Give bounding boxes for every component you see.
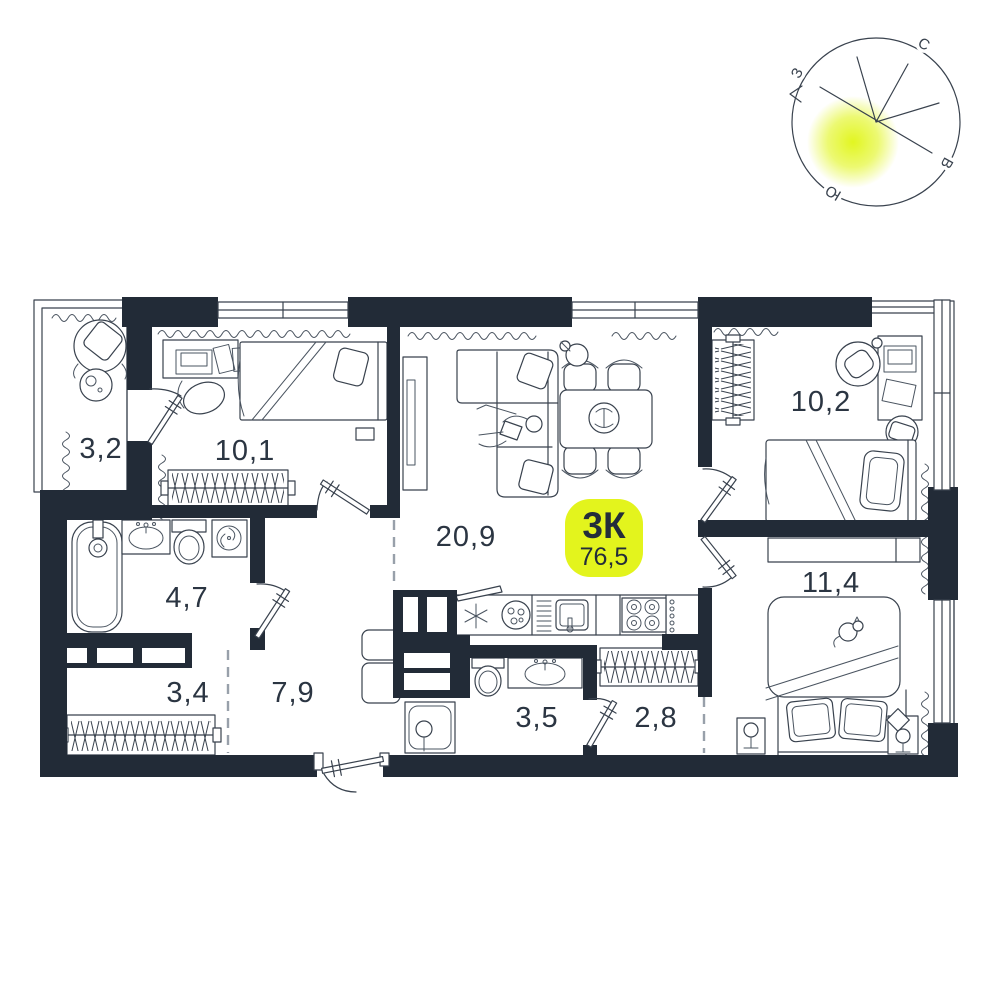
window	[934, 300, 950, 490]
shower-icon	[405, 702, 455, 753]
wall-lamp-icon	[356, 428, 374, 440]
unit-type-label: 3К	[582, 505, 626, 546]
window	[572, 302, 698, 318]
living-room-furniture	[403, 341, 652, 497]
balcony-furniture	[74, 320, 127, 401]
washing-machine-icon	[212, 520, 247, 557]
window	[934, 600, 950, 723]
pillow-icon	[786, 698, 836, 743]
stove-icon	[622, 598, 674, 632]
bed-icon	[765, 440, 916, 522]
room-area-label-bedroom-3: 11,4	[802, 567, 860, 599]
door-icon	[251, 584, 293, 641]
door-icon	[697, 469, 739, 525]
door-icon	[144, 389, 186, 447]
desk-chair-icon	[179, 377, 229, 420]
window	[218, 302, 348, 318]
nightstand-icon	[737, 718, 765, 754]
room-area-label-bedroom-1: 10,1	[215, 435, 275, 467]
unit-area-label: 76,5	[580, 543, 629, 571]
washbasin-icon	[508, 658, 582, 688]
room-area-label-shower: 3,5	[515, 702, 558, 734]
wardrobe-rail-icon	[594, 648, 702, 686]
compass-north-label: С	[915, 34, 933, 54]
entrance-door-icon	[314, 751, 389, 792]
washbasin-icon	[122, 520, 170, 554]
compass-arrow-icon	[790, 86, 802, 102]
bedroom1-furniture	[161, 340, 387, 506]
storage-wardrobe-icon	[60, 715, 221, 755]
compass: С В Ю З	[788, 34, 960, 206]
pillow-icon	[859, 450, 905, 512]
room-area-label-bedroom-2: 10,2	[791, 386, 851, 418]
unit-badge: 3К 76,5	[565, 499, 643, 577]
colander-icon	[502, 601, 530, 629]
room-area-label-balcony: 3,2	[79, 433, 122, 465]
wardrobe-icon	[712, 335, 754, 425]
nightstand-icon	[887, 709, 918, 754]
room-area-label-storage: 3,4	[166, 677, 209, 709]
desk-chair-icon	[836, 338, 882, 386]
floorplan-page: 3,2 10,1 20,9 10,2 11,4 4,7 3,4 7,9 3,5 …	[0, 0, 1000, 1000]
wardrobe-icon	[161, 470, 295, 506]
room-area-label-bathroom: 4,7	[165, 582, 208, 614]
desk-icon	[163, 340, 238, 378]
pillow-icon	[518, 459, 554, 495]
floor-lamp-icon	[560, 341, 588, 366]
toilet-icon	[472, 658, 504, 696]
double-bed-icon	[766, 597, 906, 755]
door-icon	[317, 476, 372, 518]
room-area-label-living: 20,9	[436, 521, 496, 553]
room-area-label-hallway: 7,9	[271, 677, 314, 709]
compass-east-label: В	[937, 154, 957, 171]
bathroom-furniture	[72, 520, 247, 632]
floorplan-canvas: 3,2 10,1 20,9 10,2 11,4 4,7 3,4 7,9 3,5 …	[0, 0, 1000, 1000]
side-table-icon	[80, 369, 112, 401]
door-icon	[583, 698, 621, 749]
bedroom2-furniture	[712, 335, 922, 522]
toilet-icon	[172, 520, 206, 564]
desk-icon	[878, 336, 922, 420]
bathtub-icon	[72, 520, 122, 632]
sun-glow	[807, 96, 899, 188]
dresser-icon	[768, 538, 920, 562]
room-area-label-wardrobe: 2,8	[634, 702, 677, 734]
door-icon	[698, 534, 740, 587]
plant-icon	[589, 403, 619, 433]
